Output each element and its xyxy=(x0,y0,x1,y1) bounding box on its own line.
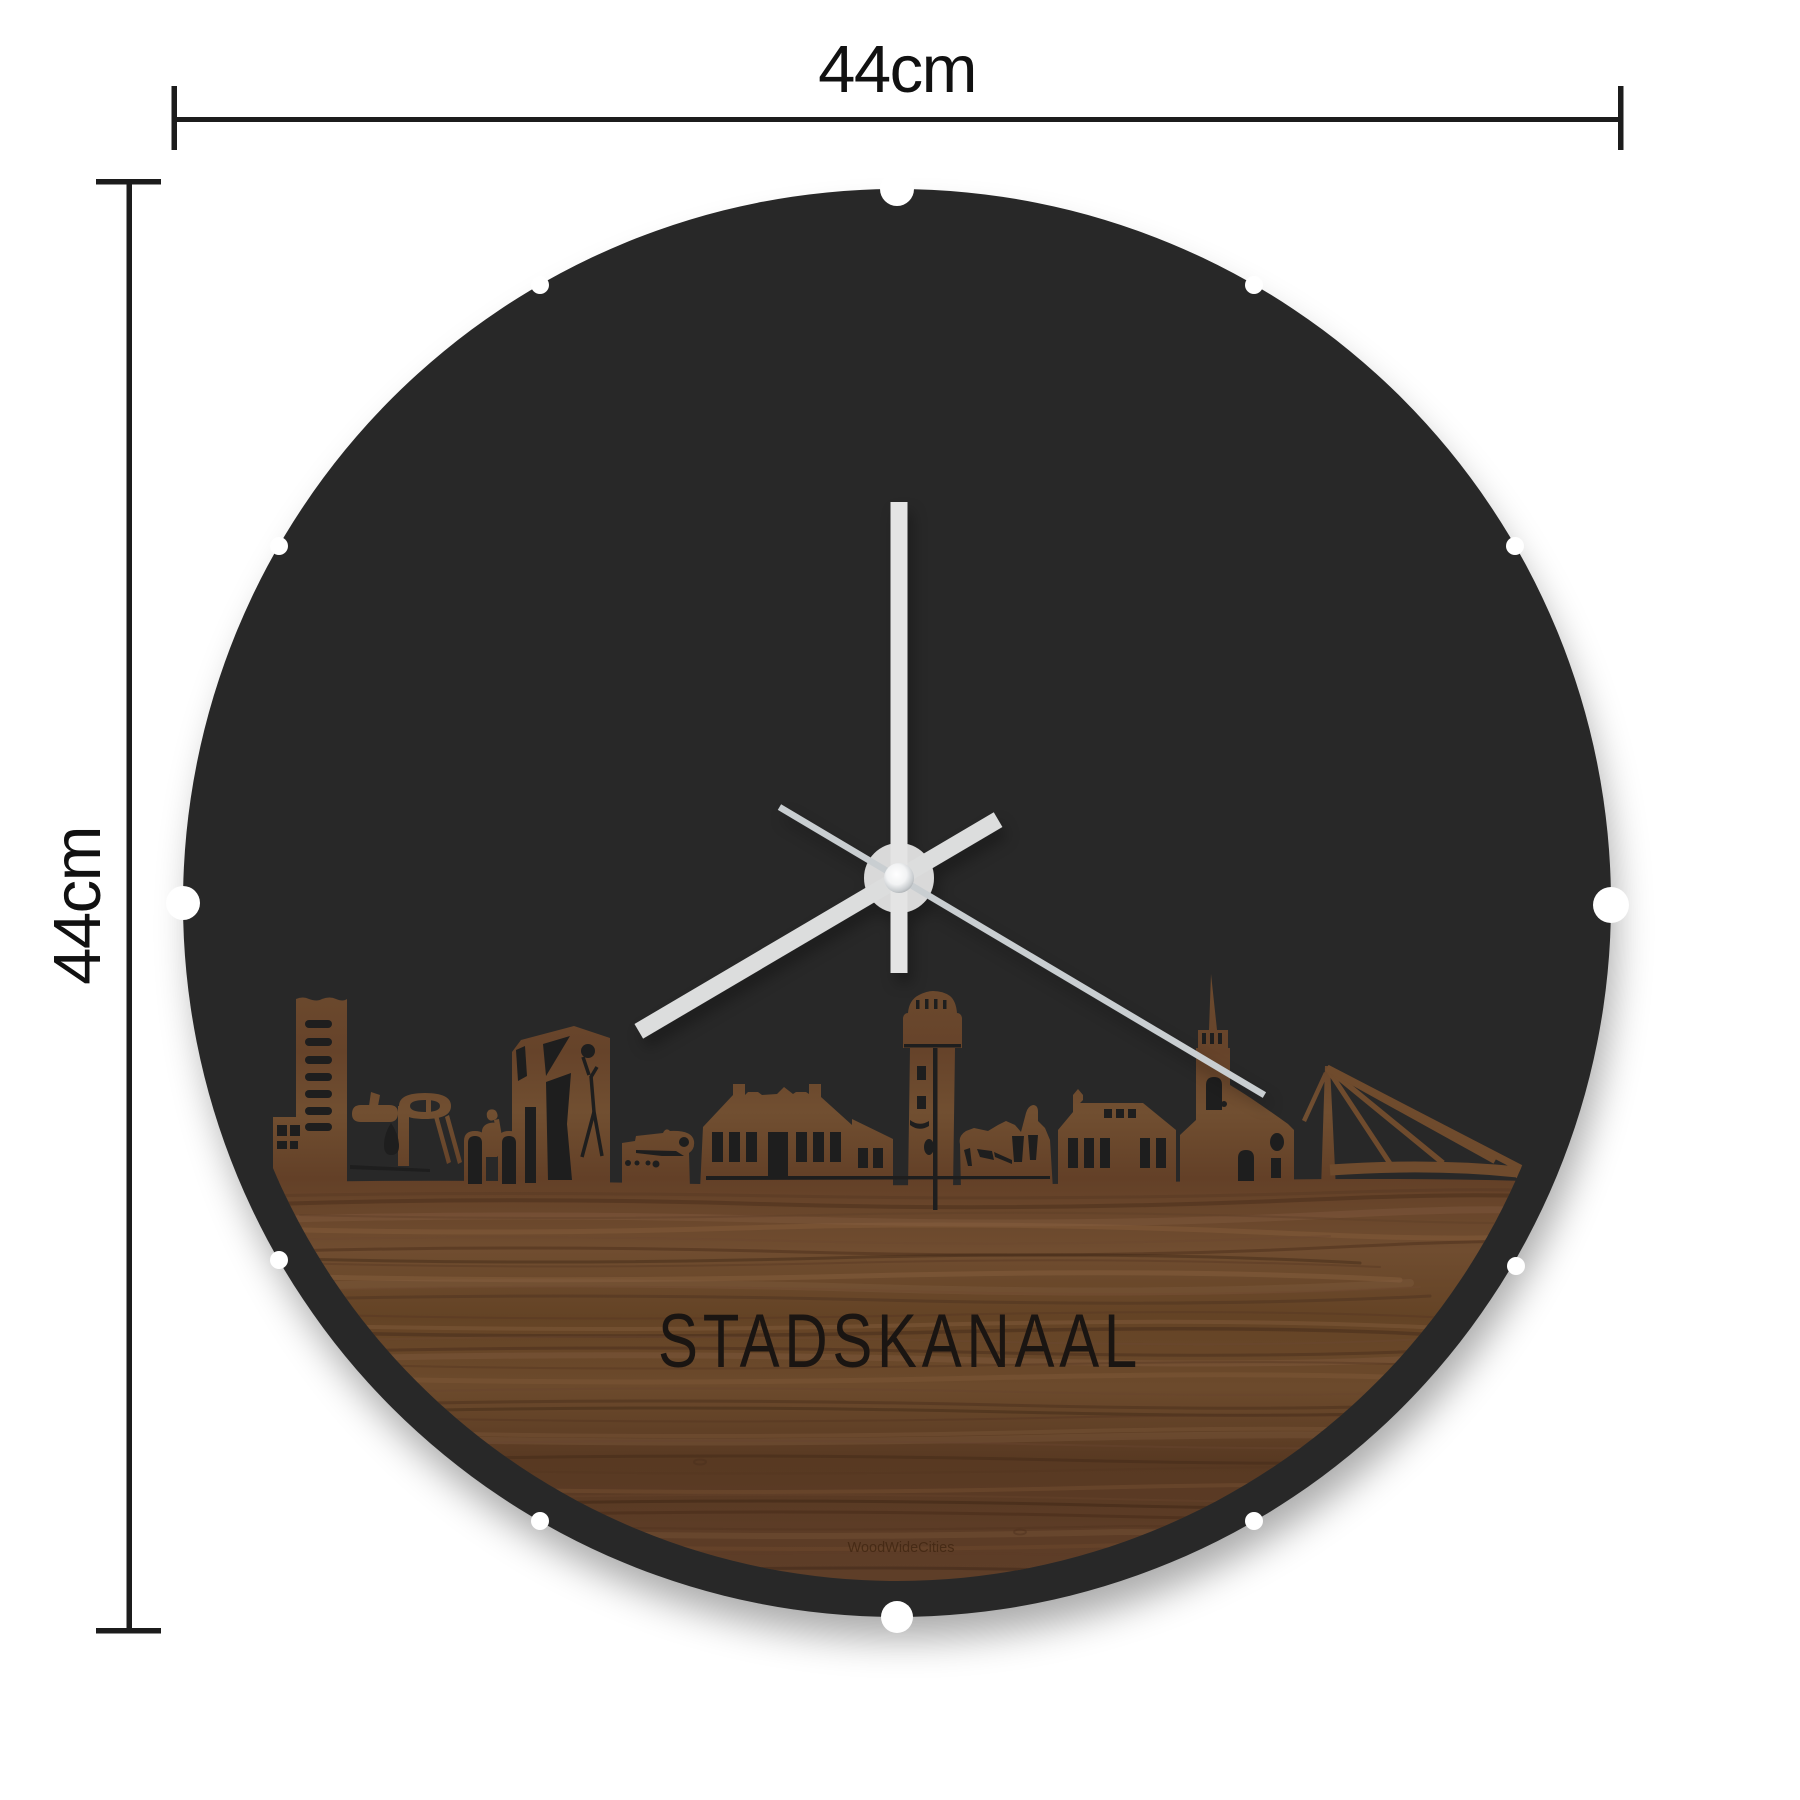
svg-text:WoodWideCities: WoodWideCities xyxy=(848,1540,955,1556)
svg-text:44cm: 44cm xyxy=(40,827,115,985)
svg-text:STADSKANAAL: STADSKANAAL xyxy=(658,1299,1142,1384)
svg-text:44cm: 44cm xyxy=(818,32,976,107)
